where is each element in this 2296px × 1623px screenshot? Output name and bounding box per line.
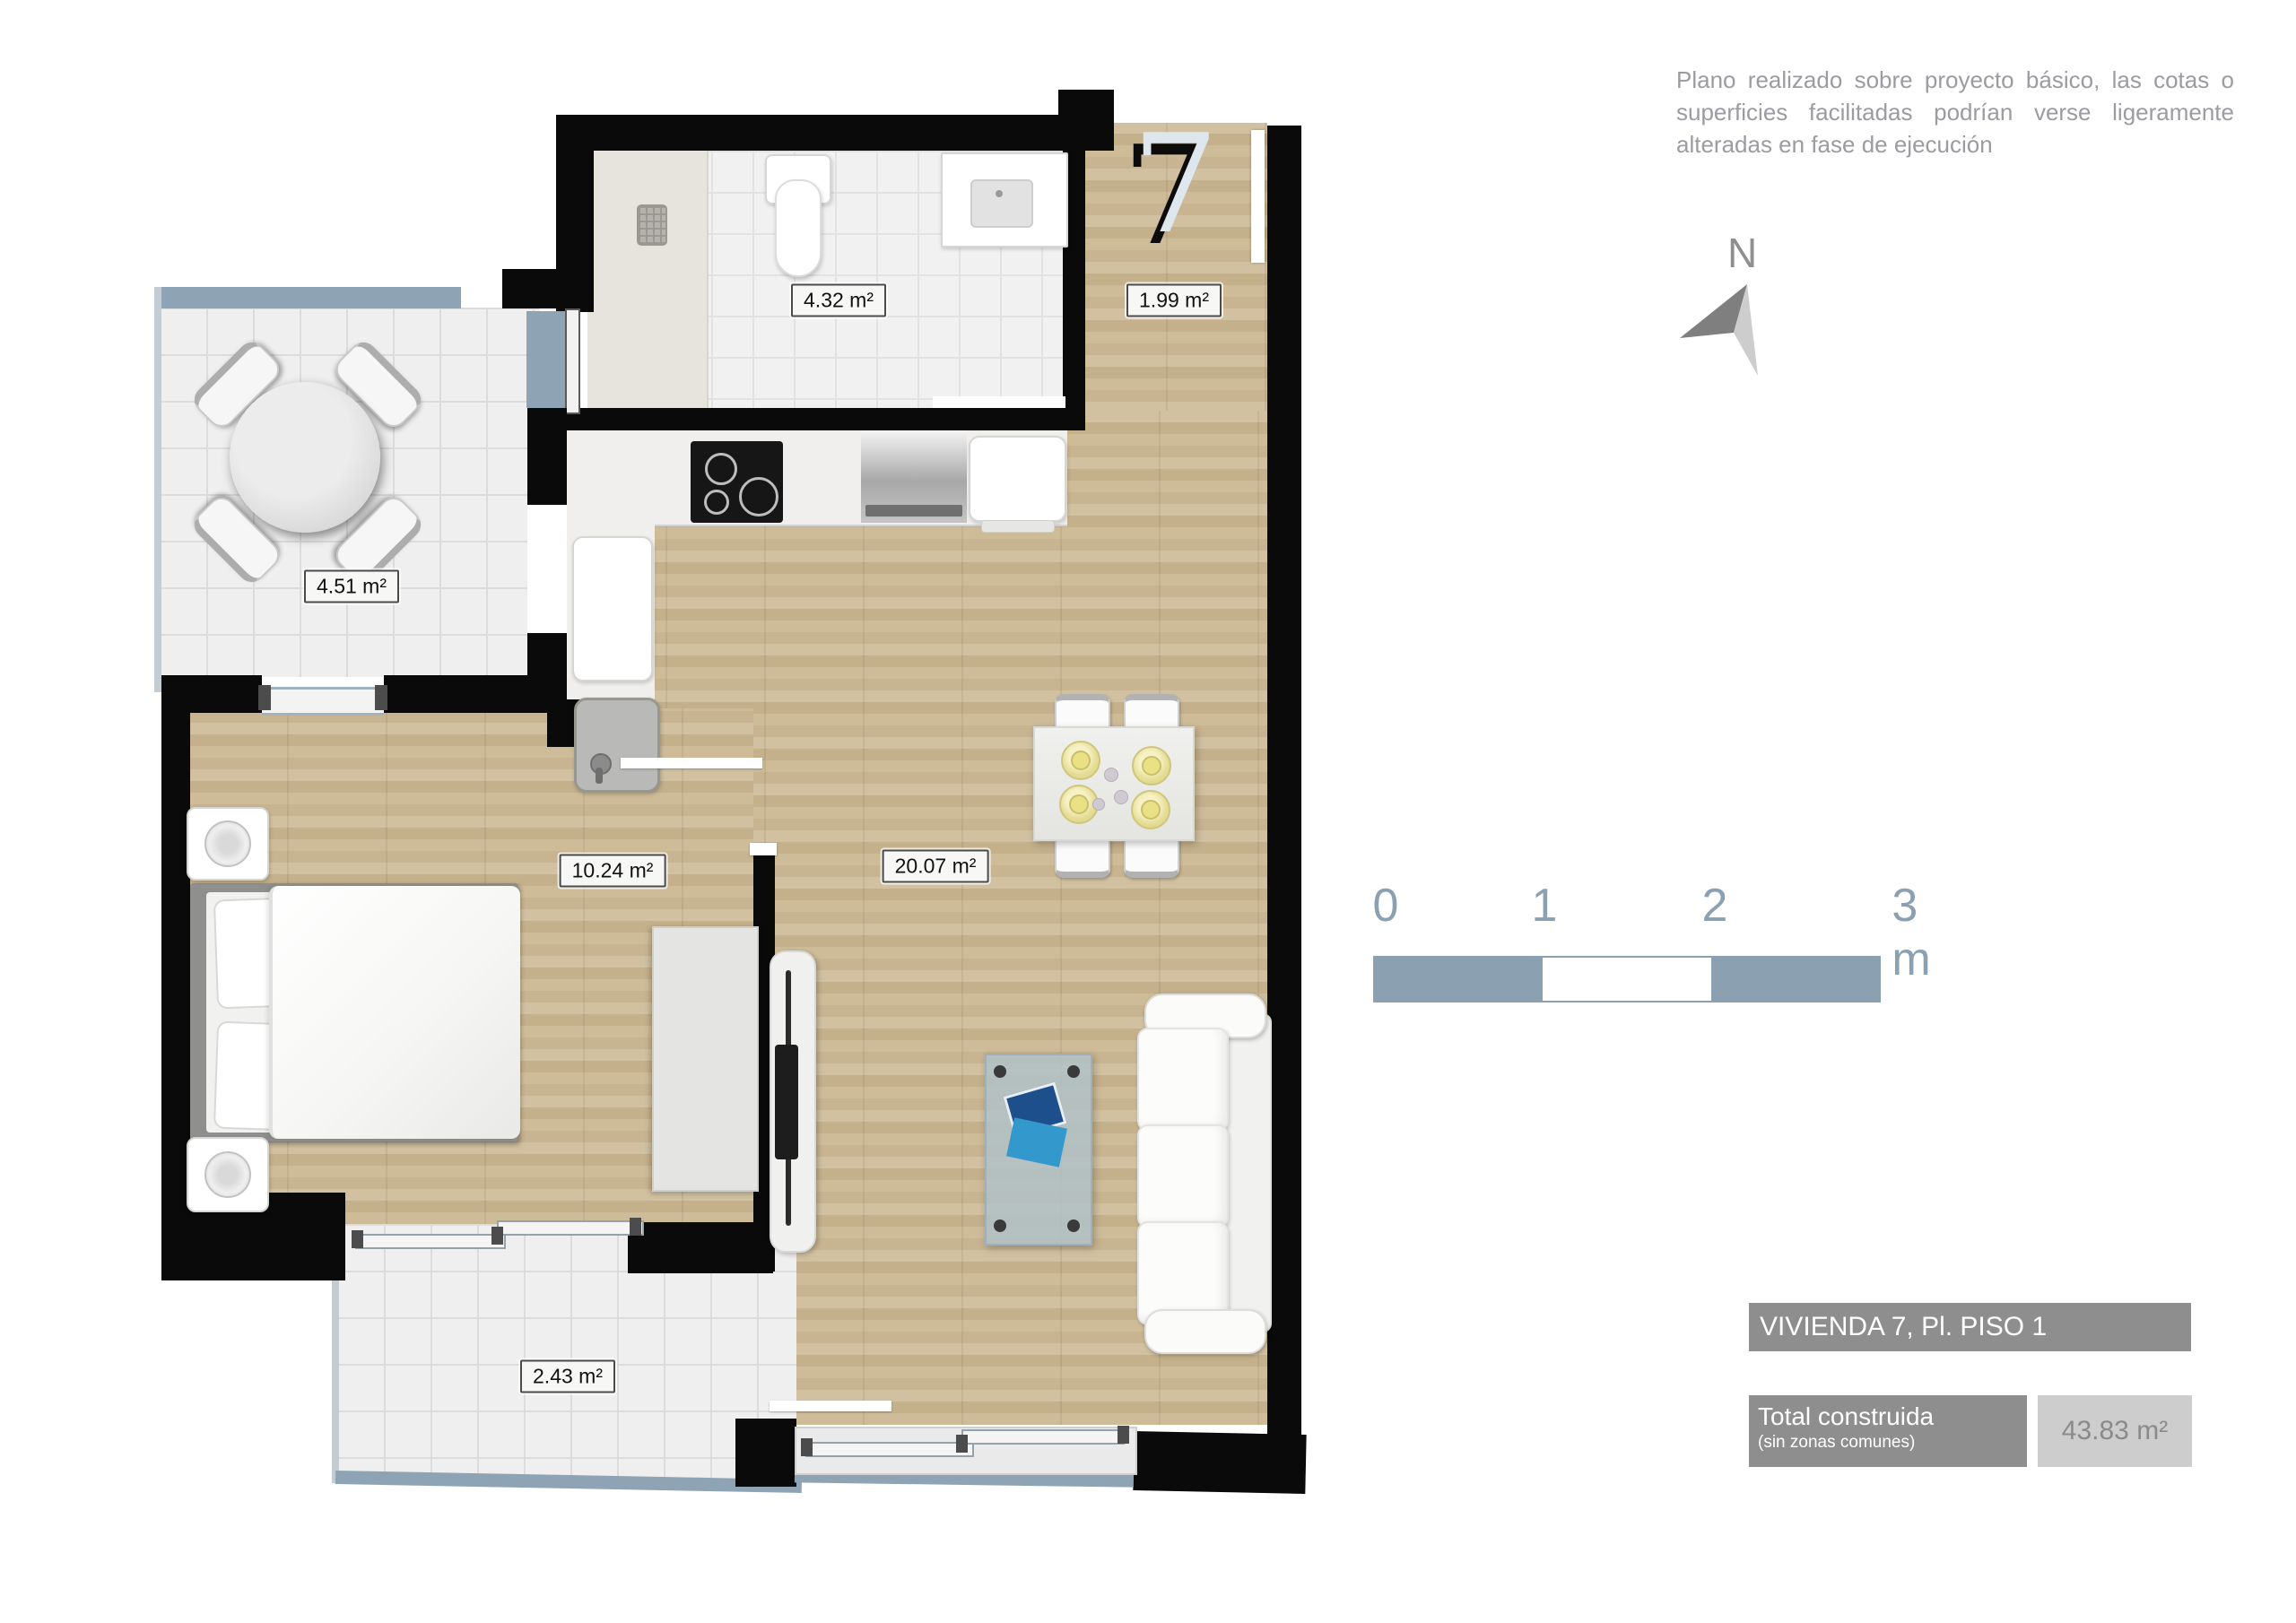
place-setting-inner [1142, 756, 1161, 776]
shower-drain [637, 204, 667, 246]
bed-duvet [269, 886, 520, 1139]
sink-faucet [996, 190, 1003, 197]
wall-terrace-kitchen-upper [527, 408, 567, 505]
total-box: Total construida (sin zonas comunes) [1749, 1395, 2027, 1467]
terrace-door-threshold [527, 505, 567, 633]
sofa-armrest [1144, 1309, 1266, 1354]
window-handle [956, 1435, 968, 1453]
area-label-living: 20.07 m² [883, 850, 989, 883]
wall-bath-top [556, 115, 1085, 151]
floor-plan: 7 [0, 0, 1345, 1623]
area-label-entry: 1.99 m² [1126, 284, 1222, 317]
scale-bar-segments [1373, 956, 1881, 1002]
wall-bath-bottom [556, 408, 1085, 430]
terrace-bath-window [526, 311, 565, 408]
shower-tray [587, 151, 709, 411]
sofa-seat [1137, 1124, 1229, 1228]
coffee-table-foot [1067, 1065, 1080, 1078]
scale-tick-2: 2 [1702, 879, 1728, 933]
nightstand-lamp [204, 1151, 251, 1198]
total-value-box: 43.83 m² [2038, 1395, 2192, 1467]
wall-terrace-corner [502, 269, 558, 308]
kitchen-oven-handle [865, 505, 962, 516]
scale-tick-3: 3 m [1892, 879, 1930, 986]
terrace-window-post [375, 685, 387, 710]
entry-door [1251, 130, 1265, 263]
cooktop-burner [705, 453, 737, 485]
area-label-terrace: 4.51 m² [304, 570, 399, 603]
terrace-window-post [258, 685, 271, 710]
window-handle [801, 1438, 813, 1456]
bedroom-balcony-window-pane [497, 1220, 644, 1236]
scale-tick-1: 1 [1532, 879, 1558, 933]
window-handle [352, 1230, 363, 1248]
scale-bar: 0 1 2 3 m [1373, 879, 1947, 1004]
scale-segment-filled [1711, 958, 1879, 1001]
terrace-railing-left [154, 287, 161, 692]
window-handle [630, 1218, 641, 1236]
wall-bedroom-bottom-right [628, 1222, 773, 1273]
kitchen-fridge-bar [981, 520, 1055, 533]
unit-number: 7 [1132, 117, 1219, 253]
bedroom-door-threshold [621, 758, 762, 768]
north-arrow-icon [1666, 275, 1774, 383]
cooktop-burner [704, 490, 729, 515]
nightstand-lamp [204, 820, 251, 867]
living-balcony-window-pane [805, 1442, 974, 1457]
terrace-table [230, 382, 380, 533]
window-handle [491, 1227, 503, 1245]
kitchen-fridge [969, 436, 1066, 522]
wall-bedroom-top-right [384, 675, 547, 713]
wall-partition-cap [750, 843, 777, 855]
coffee-table-foot [1067, 1219, 1080, 1232]
bathroom-door-threshold [933, 396, 1065, 408]
terrace-railing-top [160, 287, 461, 308]
bedroom-balcony-window-pane [355, 1234, 506, 1249]
terrace-bath-window-frame [565, 308, 580, 414]
total-sublabel: (sin zonas comunes) [1749, 1431, 2027, 1453]
window-handle [1118, 1426, 1129, 1444]
kitchen-cabinet [572, 536, 653, 681]
coffee-table-foot [994, 1219, 1006, 1232]
kitchen-faucet-spout [596, 768, 603, 784]
wardrobe [652, 926, 759, 1192]
table-dot [1104, 768, 1118, 782]
disclaimer-text: Plano realizado sobre proyecto básico, l… [1676, 65, 2234, 161]
table-dot [1114, 790, 1128, 804]
bathroom-sink [970, 179, 1033, 228]
toilet-bowl [775, 179, 822, 277]
wall-right [1267, 126, 1301, 1436]
scale-segment-empty [1543, 958, 1710, 1001]
cooktop-burner [739, 477, 778, 516]
living-balcony-threshold [770, 1401, 891, 1411]
dining-table [1033, 726, 1195, 841]
place-setting-inner [1141, 800, 1161, 820]
wall-bottom-right-block [1133, 1431, 1306, 1494]
sofa-seat [1137, 1028, 1229, 1132]
living-balcony-window-pane [961, 1429, 1125, 1445]
area-label-balcony: 2.43 m² [520, 1360, 615, 1393]
balcony-railing-left [332, 1280, 339, 1483]
area-label-bathroom: 4.32 m² [791, 284, 886, 317]
total-label: Total construida [1749, 1395, 2027, 1431]
table-dot [1092, 798, 1105, 811]
title-box: VIVIENDA 7, Pl. PISO 1 [1749, 1303, 2191, 1351]
place-setting-inner [1069, 794, 1089, 814]
title-text: VIVIENDA 7, Pl. PISO 1 [1749, 1312, 2047, 1342]
terrace-window [262, 687, 384, 716]
scale-tick-0: 0 [1373, 879, 1399, 933]
tv-body [775, 1045, 798, 1159]
north-indicator: N [1666, 229, 1792, 390]
coffee-table-foot [994, 1065, 1006, 1078]
place-setting-inner [1071, 751, 1091, 770]
wall-window-left-block [735, 1419, 796, 1487]
kitchen-sink-unit [574, 698, 660, 793]
north-label: N [1727, 229, 1757, 277]
total-value: 43.83 m² [2062, 1416, 2168, 1446]
scale-segment-filled [1375, 958, 1543, 1001]
wall-bedroom-left [161, 675, 190, 1213]
area-label-bedroom: 10.24 m² [560, 855, 666, 888]
